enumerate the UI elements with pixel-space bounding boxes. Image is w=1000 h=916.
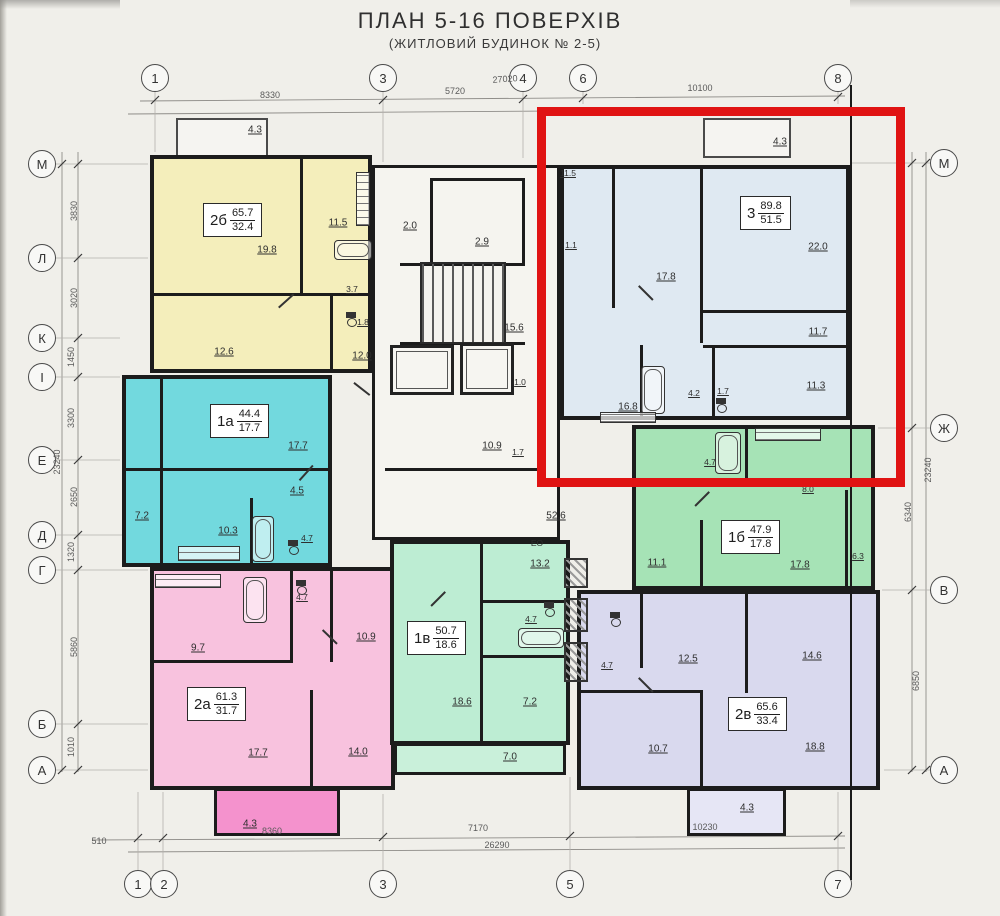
interior-wall (845, 490, 848, 588)
room-area-label: 4.7 (301, 533, 313, 543)
scan-edge-shade (0, 0, 7, 916)
toilet-icon (346, 312, 356, 326)
room-area-label: 12.0 (352, 351, 371, 362)
room-area-label: 17.7 (288, 441, 307, 452)
apartment-code: 2в (735, 706, 751, 723)
kitchen-counter-icon (155, 574, 221, 588)
living-area: 17.7 (237, 422, 262, 435)
axis-circle-right-v: В (930, 576, 958, 604)
room-area-label: 12.5 (678, 654, 697, 665)
room-area-label: 10.3 (218, 526, 237, 537)
interior-wall (700, 690, 703, 788)
apartment-code: 1б (728, 529, 745, 546)
axis-circle-left-i: І (28, 363, 56, 391)
room-area-label: 11.5 (329, 218, 348, 229)
axis-circle-top-8: 8 (824, 64, 852, 92)
total-area: 65.6 (754, 701, 779, 715)
room-area-label: 7.2 (135, 511, 149, 522)
living-area: 17.8 (748, 538, 773, 551)
room-area-label: 7.2 (523, 697, 537, 708)
room-area-label: 14.6 (802, 651, 821, 662)
total-area: 50.7 (433, 625, 458, 639)
interior-wall (480, 600, 568, 603)
toilet-icon (544, 602, 554, 616)
axis-circle-top-6: 6 (569, 64, 597, 92)
apartment-info-box-2a: 2а 61.331.7 (187, 687, 246, 721)
axis-circle-right-m: М (930, 149, 958, 177)
room-area-label: 4.7 (525, 614, 537, 624)
interior-wall (125, 468, 329, 471)
dimension-label: 1450 (66, 347, 76, 367)
interior-wall (153, 293, 369, 296)
balcony-area-label: 4.3 (243, 819, 257, 830)
core-wall (430, 178, 433, 266)
living-area: 32.4 (230, 221, 255, 234)
interior-wall (700, 520, 703, 588)
balcony-area-label: 7.0 (503, 752, 517, 763)
axis-circle-left-d: Д (28, 521, 56, 549)
dimension-label: 23240 (923, 457, 933, 482)
dimension-label: 1320 (66, 542, 76, 562)
apartment-code: 2а (194, 696, 211, 713)
axis-circle-left-b: Б (28, 710, 56, 738)
apartment-code: 2б (210, 212, 227, 229)
axis-circle-left-k: К (28, 324, 56, 352)
balcony-1v (394, 743, 566, 775)
axis-circle-right-a: А (930, 756, 958, 784)
axis-circle-left-a: А (28, 756, 56, 784)
apartment-info-box-2v: 2в 65.633.4 (728, 697, 787, 731)
duct-shaft (564, 598, 588, 632)
dimension-label: 10230 (692, 822, 717, 832)
apartment-code: 1в (414, 630, 430, 647)
dimension-label: 27020 (492, 73, 518, 85)
room-area-label: 4.5 (290, 486, 304, 497)
dimension-label: 10100 (687, 83, 712, 93)
area-fraction: 47.917.8 (748, 524, 773, 550)
apartment-info-box-2b: 2б 65.732.4 (203, 203, 262, 237)
area-fraction: 50.718.6 (433, 625, 458, 651)
total-area: 44.4 (237, 408, 262, 422)
dimension-label: 510 (91, 836, 106, 846)
core-wall (522, 178, 525, 266)
kitchen-counter-icon (178, 546, 240, 561)
dimension-label: 6850 (911, 671, 921, 691)
room-area-label: 13.2 (530, 559, 549, 570)
balcony-area-label: 4.3 (248, 125, 262, 136)
core-area-label: 52.6 (546, 511, 565, 522)
room-area-label: 9.7 (191, 643, 205, 654)
apartment-info-box-1b: 1б 47.917.8 (721, 520, 780, 554)
axis-circle-top-1: 1 (141, 64, 169, 92)
axis-circle-left-l: Л (28, 244, 56, 272)
eo-panel-label: ЕО (531, 538, 543, 548)
dimension-label: 5860 (69, 637, 79, 657)
axis-circle-bottom-7: 7 (824, 870, 852, 898)
interior-wall (160, 378, 163, 564)
room-area-label: 18.8 (805, 742, 824, 753)
room-area-label: 12.6 (214, 347, 233, 358)
core-area-label: 2.9 (475, 237, 489, 248)
room-area-label: 14.0 (348, 747, 367, 758)
apartment-2b-region (150, 155, 372, 373)
room-area-label: 10.7 (648, 744, 667, 755)
bathtub-icon (252, 516, 274, 562)
dimension-label: 7170 (468, 823, 488, 833)
area-fraction: 61.331.7 (214, 691, 239, 717)
floor-plan-page: ПЛАН 5-16 ПОВЕРХІВ (ЖИТЛОВИЙ БУДИНОК № 2… (0, 0, 1000, 916)
area-fraction: 65.633.4 (754, 701, 779, 727)
interior-wall (480, 543, 483, 743)
bathtub-icon (243, 577, 267, 623)
duct-shaft (564, 558, 588, 588)
room-area-label: 11.1 (648, 558, 667, 569)
axis-circle-right-zh: Ж (930, 414, 958, 442)
room-area-label: 1.8 (357, 317, 369, 327)
core-area-label: 1.0 (514, 377, 526, 387)
room-area-label: 10.9 (356, 632, 375, 643)
interior-wall (480, 655, 568, 658)
interior-wall (153, 660, 293, 663)
total-area: 65.7 (230, 207, 255, 221)
dimension-label: 3830 (69, 201, 79, 221)
apartment-code: 1а (217, 413, 234, 430)
interior-wall (310, 690, 313, 788)
room-area-label: 18.6 (452, 697, 471, 708)
living-area: 31.7 (214, 705, 239, 718)
dimension-label: 6340 (903, 502, 913, 522)
dimension-label: 26290 (484, 840, 509, 850)
dimension-label: 1010 (66, 737, 76, 757)
room-area-label: 6.3 (852, 551, 864, 561)
interior-wall (745, 593, 748, 693)
interior-wall (640, 593, 643, 668)
living-area: 18.6 (433, 639, 458, 652)
core-area-label: 10.9 (482, 441, 501, 452)
axis-circle-left-m: М (28, 150, 56, 178)
staircase (420, 262, 506, 344)
core-wall (385, 468, 545, 471)
highlight-rectangle-apartment-3 (537, 107, 905, 487)
duct-shaft (564, 642, 588, 682)
toilet-icon (288, 540, 298, 554)
core-wall (430, 178, 525, 181)
interior-wall (580, 690, 700, 693)
living-area: 33.4 (754, 715, 779, 728)
axis-circle-bottom-5: 5 (556, 870, 584, 898)
dimension-label: 8360 (262, 826, 282, 836)
total-area: 47.9 (748, 524, 773, 538)
dimension-label: 3020 (69, 288, 79, 308)
elevator-shaft (390, 345, 454, 395)
axis-circle-bottom-3: 3 (369, 870, 397, 898)
bathtub-icon (518, 628, 564, 648)
axis-circle-bottom-2: 2 (150, 870, 178, 898)
dimension-label: 23240 (52, 449, 62, 474)
dimension-label: 5720 (445, 86, 465, 96)
dimension-label: 2650 (69, 487, 79, 507)
scan-corner-shade (0, 0, 120, 9)
bathtub-icon (334, 240, 372, 260)
core-area-label: 15.6 (504, 323, 523, 334)
axis-circle-left-g: Г (28, 556, 56, 584)
room-area-label: 4.7 (601, 660, 613, 670)
area-fraction: 44.417.7 (237, 408, 262, 434)
axis-circle-top-3: 3 (369, 64, 397, 92)
elevator-shaft (460, 343, 514, 395)
room-area-label: 17.8 (790, 560, 809, 571)
scan-corner-shade (850, 0, 1000, 8)
apartment-info-box-1v: 1в 50.718.6 (407, 621, 466, 655)
axis-circle-bottom-1: 1 (124, 870, 152, 898)
core-area-label: 1.7 (512, 447, 524, 457)
room-area-label: 17.7 (248, 748, 267, 759)
room-area-label: 4.7 (296, 592, 308, 602)
plan-title: ПЛАН 5-16 ПОВЕРХІВ (358, 8, 623, 34)
total-area: 61.3 (214, 691, 239, 705)
dimension-label: 8330 (260, 90, 280, 100)
room-area-label: 3.7 (346, 284, 358, 294)
balcony-area-label: 4.3 (740, 803, 754, 814)
interior-wall (300, 158, 303, 293)
toilet-icon (610, 612, 620, 626)
room-area-label: 19.8 (257, 245, 276, 256)
dimension-label: 3300 (66, 408, 76, 428)
plan-subtitle: (ЖИТЛОВИЙ БУДИНОК № 2-5) (389, 36, 601, 51)
apartment-info-box-1a: 1а 44.417.7 (210, 404, 269, 438)
interior-wall (330, 570, 333, 662)
area-fraction: 65.732.4 (230, 207, 255, 233)
kitchen-counter-icon (356, 172, 370, 226)
interior-wall (290, 570, 293, 662)
core-area-label: 2.0 (403, 221, 417, 232)
interior-wall (330, 293, 333, 371)
